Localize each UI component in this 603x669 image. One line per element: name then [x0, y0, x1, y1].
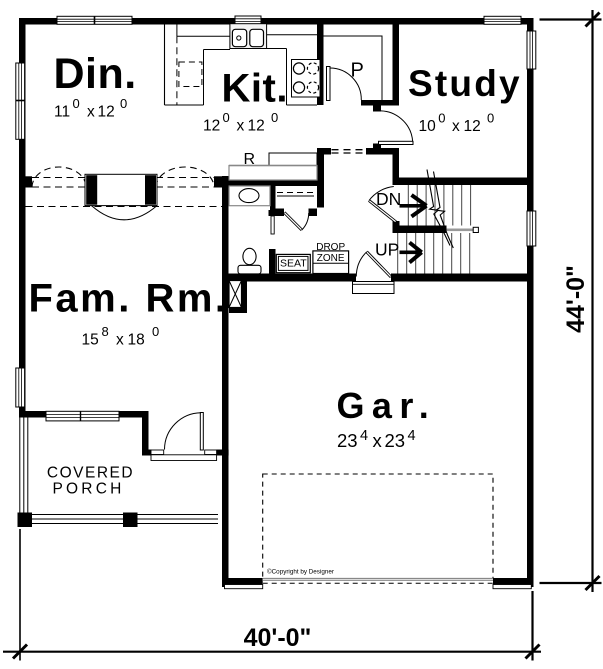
svg-text:12: 12 — [203, 118, 220, 135]
svg-text:Din.: Din. — [54, 50, 137, 98]
svg-text:15: 15 — [82, 332, 99, 349]
svg-text:0: 0 — [73, 96, 80, 111]
svg-text:0: 0 — [271, 110, 278, 125]
svg-text:44'-0": 44'-0" — [562, 265, 590, 333]
svg-text:18: 18 — [128, 332, 145, 349]
svg-text:Kit.: Kit. — [222, 67, 288, 111]
svg-text:x: x — [452, 118, 460, 135]
svg-text:40'-0": 40'-0" — [244, 624, 312, 652]
svg-text:ZONE: ZONE — [317, 253, 345, 264]
svg-text:DROP: DROP — [316, 242, 345, 253]
svg-text:Fam. Rm.: Fam. Rm. — [29, 277, 229, 321]
svg-text:UP: UP — [375, 240, 399, 260]
svg-text:x: x — [116, 332, 124, 349]
svg-text:0: 0 — [120, 96, 127, 111]
svg-text:PORCH: PORCH — [53, 481, 125, 498]
svg-text:4: 4 — [408, 428, 416, 444]
svg-text:12: 12 — [98, 104, 115, 121]
svg-text:12: 12 — [248, 118, 265, 135]
svg-text:4: 4 — [360, 428, 368, 444]
svg-text:x: x — [237, 118, 245, 135]
svg-text:Gar.: Gar. — [337, 385, 437, 426]
svg-text:DN: DN — [376, 189, 401, 209]
svg-text:x: x — [373, 430, 383, 451]
svg-text:SEAT: SEAT — [280, 258, 307, 270]
svg-text:23: 23 — [337, 430, 358, 451]
svg-text:P: P — [351, 60, 364, 82]
svg-text:©Copyright by Designer: ©Copyright by Designer — [267, 567, 334, 575]
svg-text:11: 11 — [54, 104, 70, 121]
svg-text:0: 0 — [152, 324, 159, 339]
svg-text:8: 8 — [102, 324, 109, 339]
svg-text:COVERED: COVERED — [47, 465, 134, 482]
svg-text:R: R — [244, 151, 256, 168]
svg-text:0: 0 — [223, 110, 230, 125]
svg-text:Study: Study — [408, 63, 522, 104]
svg-text:23: 23 — [385, 430, 406, 451]
svg-text:x: x — [87, 104, 95, 121]
svg-text:0: 0 — [438, 111, 445, 126]
svg-text:12: 12 — [464, 118, 481, 135]
svg-text:0: 0 — [487, 111, 494, 126]
svg-text:10: 10 — [419, 118, 437, 135]
